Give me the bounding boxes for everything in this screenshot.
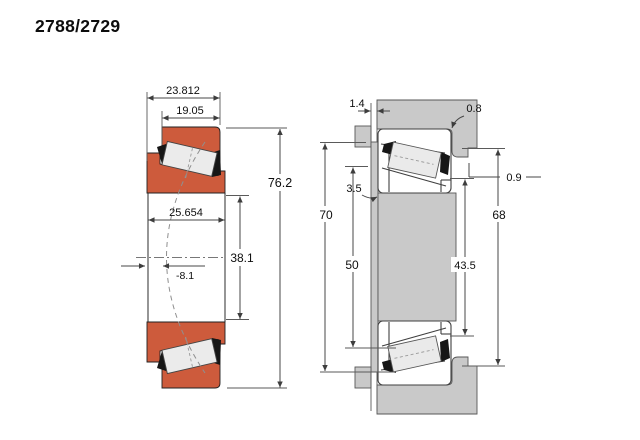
- dim-housing-fillet: 0.8: [466, 103, 481, 115]
- mounted-bearing-top: [378, 129, 451, 193]
- dim-effective-center: -8.1: [176, 270, 194, 282]
- shaft-shoulder: [371, 142, 378, 372]
- dim-shaft-fillet: 3.5: [346, 183, 361, 195]
- shaft-body: [378, 193, 456, 321]
- dim-step-fillet: 0.9: [506, 172, 521, 184]
- dim-housing-shoulder-diameter: 68: [492, 208, 506, 222]
- dim-clearance: 1.4: [349, 98, 364, 110]
- bearing-half-top: [147, 127, 225, 193]
- dim-bore-diameter: 38.1: [230, 251, 254, 265]
- dim-housing-backing-diameter: 43.5: [454, 260, 475, 272]
- bearing-half-bottom: [147, 322, 225, 388]
- dim-cone-width: 25.654: [169, 207, 203, 219]
- section-view: [136, 127, 233, 388]
- mounted-bearing-bottom: [378, 321, 451, 385]
- bearing-drawing: 23.812 19.05 25.654 38.1 76.2 -8.1: [0, 0, 640, 440]
- dim-overall-width: 23.812: [166, 85, 200, 97]
- dim-outside-diameter: 76.2: [268, 176, 292, 190]
- housing-top-lip: [355, 126, 371, 147]
- dim-shaft-shoulder-diameter: 70: [319, 208, 333, 222]
- dim-shaft-backing-diameter: 50: [345, 258, 359, 272]
- housing-bottom-lip: [355, 367, 371, 388]
- catalog-page: 2788/2729: [0, 0, 640, 440]
- dim-cup-width: 19.05: [176, 105, 204, 117]
